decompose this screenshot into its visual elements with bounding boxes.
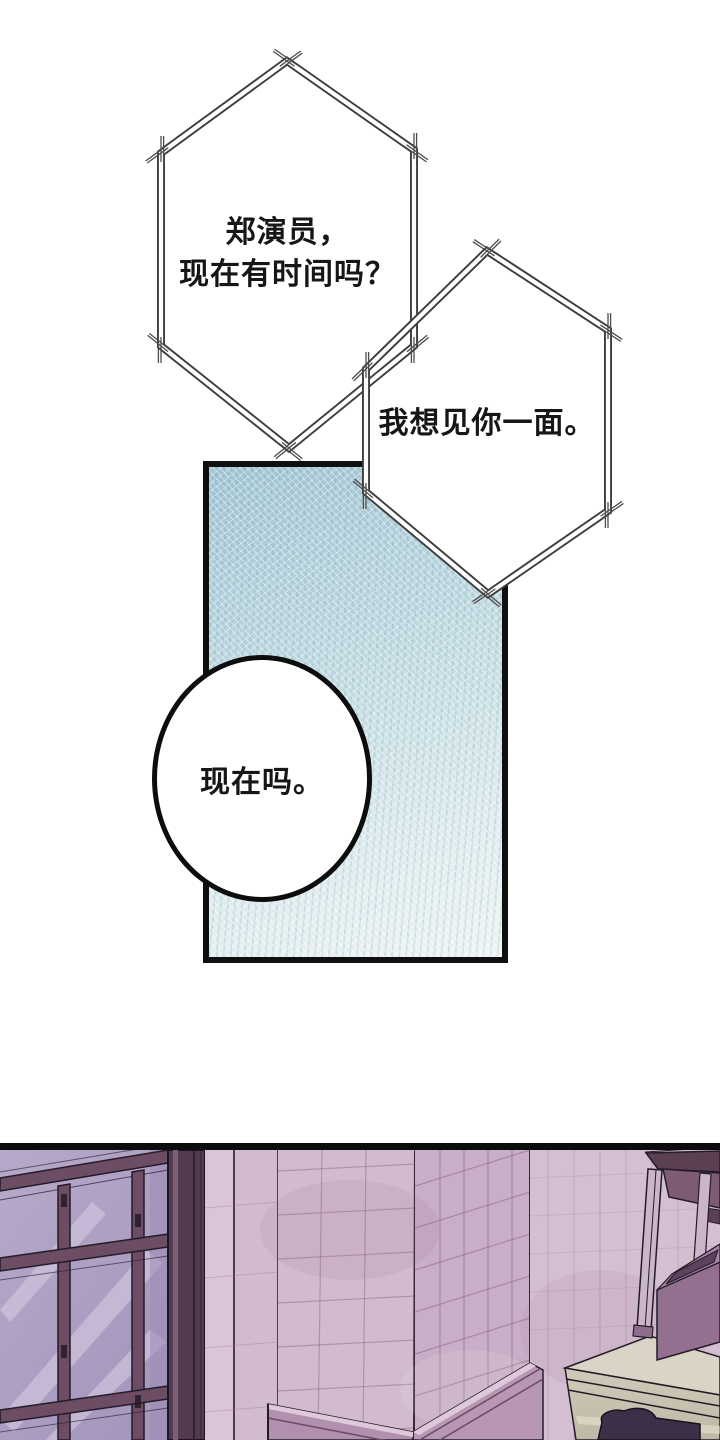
bathroom-scene — [0, 1150, 720, 1440]
phone-bubble-2-text: 我想见你一面。 — [366, 403, 608, 445]
phone-bubble-1-line1: 郑演员， — [161, 212, 414, 254]
phone-bubble-1-text: 郑演员， 现在有时间吗？ — [161, 212, 414, 296]
wall-strips — [205, 1150, 278, 1440]
speech-bubble-text: 现在吗。 — [200, 757, 324, 801]
phone-bubble-1-line2: 现在有时间吗？ — [161, 254, 414, 296]
scene-panel — [0, 1143, 720, 1440]
comic-page: 郑演员， 现在有时间吗？ 我想见你一面。 现在吗。 — [0, 0, 720, 1440]
table-top — [646, 1151, 720, 1172]
speech-bubble-round: 现在吗。 — [152, 655, 372, 902]
window — [0, 1150, 205, 1440]
